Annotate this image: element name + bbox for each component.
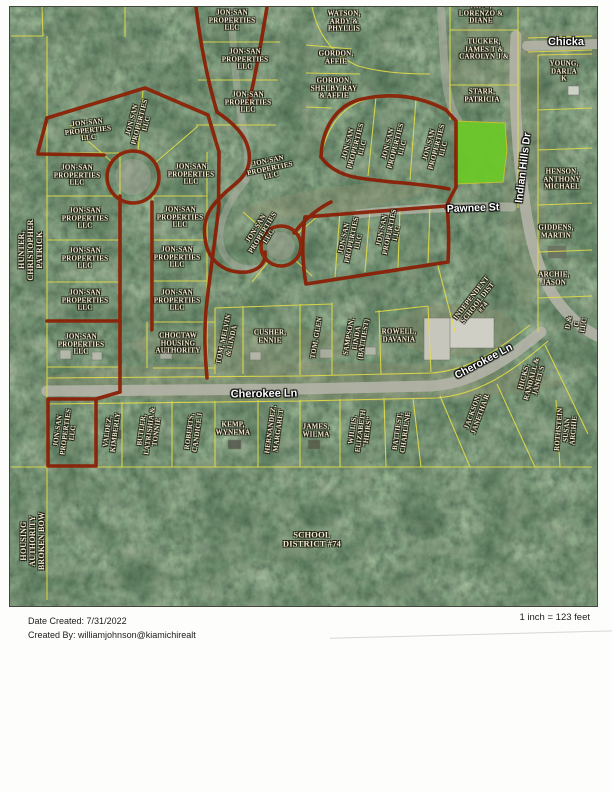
parcel-owner-label: JON-SAN PROPERTIES LLC: [374, 207, 406, 257]
parcel-owner-label: GORDON, SHELBY RAY & AFFIE: [311, 77, 357, 100]
parcel-owner-label: JON-SAN PROPERTIES LLC: [154, 289, 201, 312]
parcel-owner-label: JON-SAN PROPERTIES LLC: [222, 48, 269, 71]
parcel-owner-label: D & C LLC: [564, 312, 590, 336]
parcel-owner-label: HOUSING AUTHORITY BROKEN BOW: [20, 512, 46, 570]
parcel-owner-label: TOM, GLEN: [310, 317, 325, 359]
parcel-owner-label: KING, LORENZO & DIANE: [459, 6, 503, 26]
parcel-owner-label: HICKS, RANDALL & JANET S: [515, 355, 549, 403]
created-by-line: Created By: williamjohnson@kiamichirealt: [28, 630, 196, 640]
parcel-owner-label: GIDDENS, MARTIN: [538, 224, 573, 239]
parcel-owner-label: JON-SAN PROPERTIES LLC: [241, 207, 285, 259]
street-label: Cherokee Ln: [453, 342, 515, 382]
street-label: Indian Hills Dr: [514, 132, 534, 203]
parcel-owner-label: JAMES, WILMA: [302, 423, 329, 438]
parcel-owner-label: JON-SAN PROPERTIES LLC: [336, 215, 368, 265]
map-labels-layer: JON-SAN PROPERTIES LLCJON-SAN PROPERTIES…: [10, 7, 597, 606]
parcel-owner-label: JON-SAN PROPERTIES LLC: [225, 91, 272, 114]
parcel-owner-label: ROWELL, DAVANIA: [382, 328, 417, 343]
parcel-owner-label: WILLIS, ELIZABETH "HEIRS": [347, 408, 376, 454]
parcel-owner-label: JON-SAN PROPERTIES LLC: [62, 247, 109, 270]
parcel-owner-label: HENSON, ANTHONY MICHAEL: [543, 168, 580, 191]
parcel-owner-label: JON-SAN PROPERTIES LLC: [245, 153, 295, 185]
parcel-owner-label: STARR, PATRICIA: [464, 88, 499, 103]
parcel-owner-label: JON-SAN PROPERTIES LLC: [168, 163, 215, 186]
parcel-owner-label: HUNTER, CHRISTOPHER PATRICK: [18, 219, 44, 280]
scanned-parcel-map-page: JON-SAN PROPERTIES LLCJON-SAN PROPERTIES…: [0, 0, 612, 792]
parcel-owner-label: WATSON, ARDY & PHYLLIS: [328, 10, 361, 33]
parcel-owner-label: JON-SAN PROPERTIES LLC: [51, 407, 80, 456]
parcel-owner-label: KEMP, WYNEMA: [216, 421, 251, 436]
street-label: Cherokee Ln: [231, 387, 298, 400]
date-created-line: Date Created: 7/31/2022: [28, 616, 127, 626]
parcel-owner-label: JON-SAN PROPERTIES LLC: [209, 9, 256, 32]
parcel-owner-label: ROTHSTEIN SUSAN ARCHIE: [554, 407, 581, 452]
parcel-owner-label: JON-SAN PROPERTIES LLC: [154, 246, 201, 269]
street-label: Pawnee St: [447, 202, 500, 215]
parcel-owner-label: BATTIEST, CHARLENE: [392, 410, 413, 453]
map-scale-text: 1 inch = 123 feet: [430, 612, 590, 623]
parcel-owner-label: VALDEZ, KIMBERLY: [102, 411, 123, 453]
date-created-value: 7/31/2022: [87, 616, 127, 626]
parcel-owner-label: SCHOOL DISTRICT #74: [283, 531, 341, 550]
parcel-owner-label: JON-SAN PROPERTIES LLC: [339, 121, 373, 172]
parcel-owner-label: INDEPENDENT SCHOOL DIST #74: [453, 275, 504, 331]
parcel-map: JON-SAN PROPERTIES LLCJON-SAN PROPERTIES…: [9, 6, 598, 607]
parcel-owner-label: ROBERTS, CANDICE J: [184, 411, 205, 452]
parcel-owner-label: JON-SAN PROPERTIES LLC: [420, 122, 454, 173]
parcel-owner-label: JACKSON, JANETHA R: [463, 391, 492, 435]
parcel-owner-label: JON-SAN PROPERTIES LLC: [123, 97, 157, 148]
parcel-owner-label: JON-SAN PROPERTIES LLC: [58, 333, 105, 356]
parcel-owner-label: CHOCTAW HOUSING AUTHORITY: [156, 332, 201, 355]
parcel-owner-label: JON-SAN PROPERTIES LLC: [379, 121, 413, 172]
parcel-owner-label: SAMPSON, LINDA (BATTIEST): [342, 316, 372, 361]
parcel-owner-label: JON-SAN PROPERTIES LLC: [157, 206, 204, 229]
scan-artifact-line: [330, 630, 612, 639]
parcel-owner-label: JON-SAN PROPERTIES LLC: [62, 207, 109, 230]
parcel-owner-label: JON-SAN PROPERTIES LLC: [54, 164, 101, 187]
parcel-owner-label: YOUNG, DARLA K: [548, 60, 581, 83]
parcel-owner-label: TOM, MELVIN & LINDA: [215, 314, 241, 367]
parcel-owner-label: GORDON, AFFIE: [319, 50, 354, 65]
parcel-owner-label: JON-SAN PROPERTIES LLC: [64, 117, 113, 145]
parcel-owner-label: BUTLER, LATRISHIA & TONNIE: [135, 406, 165, 457]
parcel-owner-label: TUCKER, JAMES T & CAROLYN J &: [459, 38, 509, 61]
parcel-owner-label: JON-SAN PROPERTIES LLC: [62, 289, 109, 312]
date-created-label: Date Created:: [28, 616, 84, 626]
street-label: Chicka: [548, 36, 584, 48]
created-by-value: williamjohnson@kiamichirealt: [78, 630, 196, 640]
parcel-owner-label: CUSHER, ENNIE: [254, 329, 286, 344]
created-by-label: Created By:: [28, 630, 76, 640]
parcel-owner-label: HERNANDEZ, MARGARET: [264, 405, 286, 455]
parcel-owner-label: ARCHIE, JASON: [538, 271, 569, 286]
